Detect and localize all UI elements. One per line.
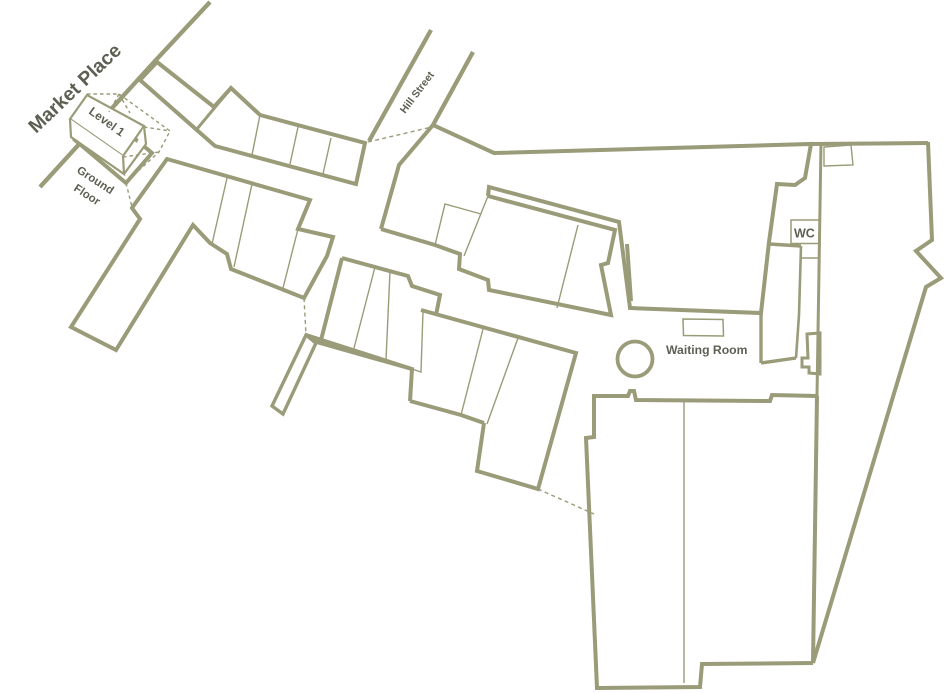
svg-text:WC: WC xyxy=(794,227,815,241)
svg-text:Waiting Room: Waiting Room xyxy=(666,343,748,357)
